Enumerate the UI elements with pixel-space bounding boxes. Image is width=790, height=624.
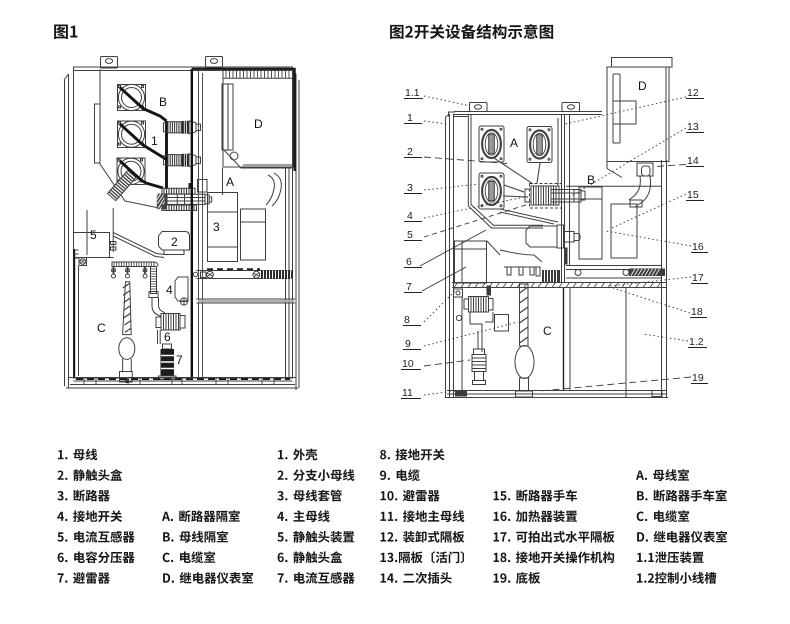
svg-text:A: A [510,136,518,150]
svg-text:9: 9 [405,338,411,350]
svg-text:A: A [226,175,234,189]
svg-text:10: 10 [402,358,414,370]
svg-text:1.2: 1.2 [689,336,704,348]
svg-text:C: C [97,321,106,335]
svg-text:4: 4 [407,210,413,222]
svg-text:15: 15 [687,189,699,201]
svg-text:4: 4 [166,283,173,297]
svg-text:6: 6 [164,330,171,344]
svg-text:B: B [587,173,595,187]
svg-text:3: 3 [213,220,220,234]
svg-text:C: C [543,324,552,338]
svg-text:2: 2 [171,235,178,249]
svg-text:13: 13 [687,121,699,133]
svg-text:5: 5 [90,228,97,242]
svg-text:2: 2 [407,146,413,158]
svg-text:7: 7 [176,353,183,367]
svg-text:D: D [254,117,263,131]
svg-text:6: 6 [406,256,412,268]
svg-text:16: 16 [692,241,704,253]
svg-text:14: 14 [687,155,699,167]
svg-text:D: D [638,79,647,93]
svg-text:7: 7 [406,281,412,293]
svg-text:3: 3 [407,182,413,194]
svg-text:5: 5 [407,229,413,241]
svg-text:8: 8 [404,314,410,326]
svg-text:1.1: 1.1 [405,87,420,99]
svg-text:1: 1 [151,134,158,148]
svg-text:1: 1 [407,112,413,124]
svg-text:17: 17 [692,272,704,284]
svg-text:11: 11 [402,387,413,399]
svg-text:18: 18 [691,306,703,318]
svg-text:B: B [159,95,167,109]
svg-text:19: 19 [692,372,704,384]
svg-text:12: 12 [687,87,699,99]
